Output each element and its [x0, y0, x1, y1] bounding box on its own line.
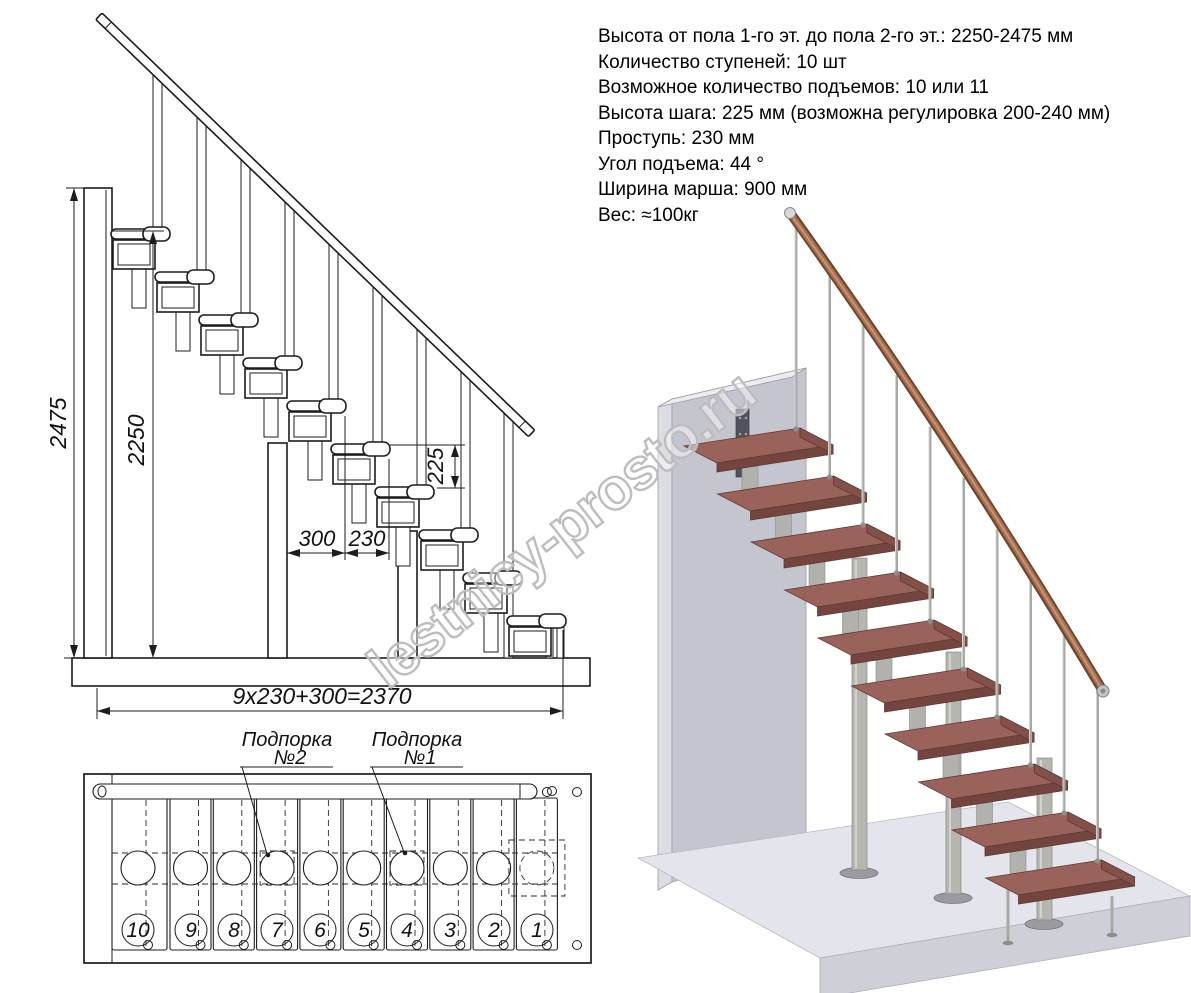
- step-number: 2: [487, 919, 500, 942]
- support-post-2: [268, 443, 287, 658]
- column-circle: [260, 851, 294, 885]
- baluster-foot: [1061, 810, 1066, 815]
- dim-to-top-tread: 2250: [123, 414, 149, 466]
- blueprint-sheet: 2475 2250 225 300 230: [0, 0, 1191, 993]
- module-box-inner: [338, 459, 370, 480]
- specifications-block: Высота от пола 1-го эт. до пола 2-го эт.…: [598, 24, 1143, 228]
- module-tube: [308, 441, 322, 480]
- base-platform: [72, 658, 590, 686]
- dim-riser: 225: [423, 447, 448, 485]
- module-tube: [352, 484, 366, 523]
- tread-collar: [231, 313, 258, 327]
- handrail-plan: [93, 784, 557, 799]
- tread-collar: [275, 356, 302, 370]
- step-number: 10: [126, 919, 150, 942]
- baluster-foot: [1028, 762, 1033, 767]
- step-number: 7: [271, 919, 284, 942]
- support1-number: №1: [404, 747, 437, 769]
- step-number: 3: [444, 919, 456, 942]
- baluster-foot: [961, 666, 966, 671]
- module-tube: [264, 398, 278, 437]
- spec-line-step-count: Количество ступеней: 10 шт: [598, 50, 1143, 76]
- baluster: [285, 198, 294, 358]
- baluster: [373, 283, 382, 444]
- baluster: [461, 368, 470, 530]
- module-tube: [396, 527, 410, 566]
- tread-collar: [187, 270, 214, 284]
- step-number: 8: [228, 919, 240, 942]
- plan-drawing: Подпорка №2 Подпорка №1 10 9 8 7 6 5 4 3…: [84, 729, 591, 963]
- baluster: [197, 113, 206, 272]
- tread-collar: [363, 442, 390, 456]
- tread-collar: [143, 227, 170, 241]
- baluster-foot: [994, 714, 999, 719]
- tread-collar: [319, 399, 346, 413]
- module-box-inner: [382, 502, 414, 523]
- baluster-foot: [793, 426, 798, 431]
- dim-total-height: 2475: [45, 397, 71, 449]
- baluster-foot: [1095, 858, 1100, 863]
- baluster-foot: [827, 474, 832, 479]
- column-circle: [303, 851, 337, 885]
- step-number: 9: [185, 919, 197, 942]
- module-tube: [220, 355, 234, 394]
- tread-collar: [539, 614, 566, 628]
- spec-line-weight: Вес: ≈100кг: [598, 203, 1143, 229]
- module-tube: [176, 312, 190, 351]
- spec-line-step-height: Высота шага: 225 мм (возможна регулировк…: [598, 101, 1143, 127]
- spec-line-angle: Угол подъема: 44 °: [598, 152, 1143, 178]
- spec-line-rise-count: Возможное количество подъемов: 10 или 11: [598, 75, 1143, 101]
- baluster: [241, 155, 250, 315]
- step-number: 1: [531, 919, 543, 942]
- module-box-inner: [118, 244, 150, 265]
- spec-line-height-range: Высота от пола 1-го эт. до пола 2-го эт.…: [598, 24, 1143, 50]
- step-number: 4: [401, 919, 413, 942]
- column-circle: [433, 851, 467, 885]
- tread-collar: [451, 528, 478, 542]
- baluster-foot: [927, 618, 932, 623]
- module-box-inner: [514, 631, 546, 652]
- spec-line-tread: Проступь: 230 мм: [598, 126, 1143, 152]
- column-circle: [347, 851, 381, 885]
- staircase-3d-render: [638, 208, 1190, 993]
- baluster-foot: [860, 522, 865, 527]
- step-number: 5: [358, 919, 370, 942]
- column-circle: [174, 851, 208, 885]
- module-tube: [132, 269, 146, 308]
- module-box-inner: [206, 330, 238, 351]
- dim-top-run: 300: [299, 526, 336, 551]
- baluster: [329, 240, 338, 401]
- wall-post: [84, 188, 112, 658]
- tread-collar: [407, 485, 434, 499]
- column-circle: [477, 851, 511, 885]
- column-circle: [121, 851, 155, 885]
- module-box-inner: [162, 287, 194, 308]
- baluster: [153, 70, 162, 229]
- column-circle: [217, 851, 251, 885]
- baluster-foot: [894, 570, 899, 575]
- module-box-inner: [250, 373, 282, 394]
- elevation-drawing: 2475 2250 225 300 230: [45, 13, 590, 719]
- spec-line-width: Ширина марша: 900 мм: [598, 177, 1143, 203]
- column-circle: [390, 851, 424, 885]
- module-box-inner: [294, 416, 326, 437]
- step-number: 6: [314, 919, 326, 942]
- support2-number: №2: [274, 747, 307, 769]
- dim-tread-depth: 230: [348, 526, 386, 551]
- module-box-inner: [426, 545, 458, 566]
